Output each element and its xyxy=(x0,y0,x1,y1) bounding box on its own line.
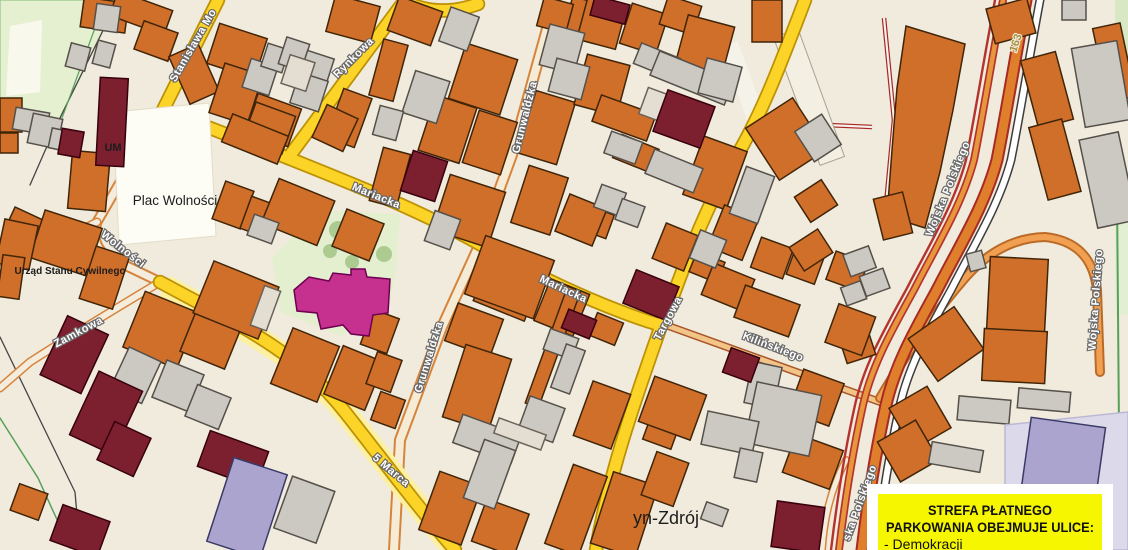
svg-text:- Demokracji: - Demokracji xyxy=(884,536,963,550)
svg-text:STREFA PŁATNEGO: STREFA PŁATNEGO xyxy=(928,502,1052,518)
svg-text:Plac Wolności: Plac Wolności xyxy=(133,193,218,208)
svg-text:Urząd Stanu Cywilnego: Urząd Stanu Cywilnego xyxy=(14,266,125,277)
svg-text:PARKOWANIA OBEJMUJE ULICE:: PARKOWANIA OBEJMUJE ULICE: xyxy=(886,519,1094,535)
svg-text:yn-Zdrój: yn-Zdrój xyxy=(633,508,699,528)
svg-text:UM: UM xyxy=(104,142,121,154)
